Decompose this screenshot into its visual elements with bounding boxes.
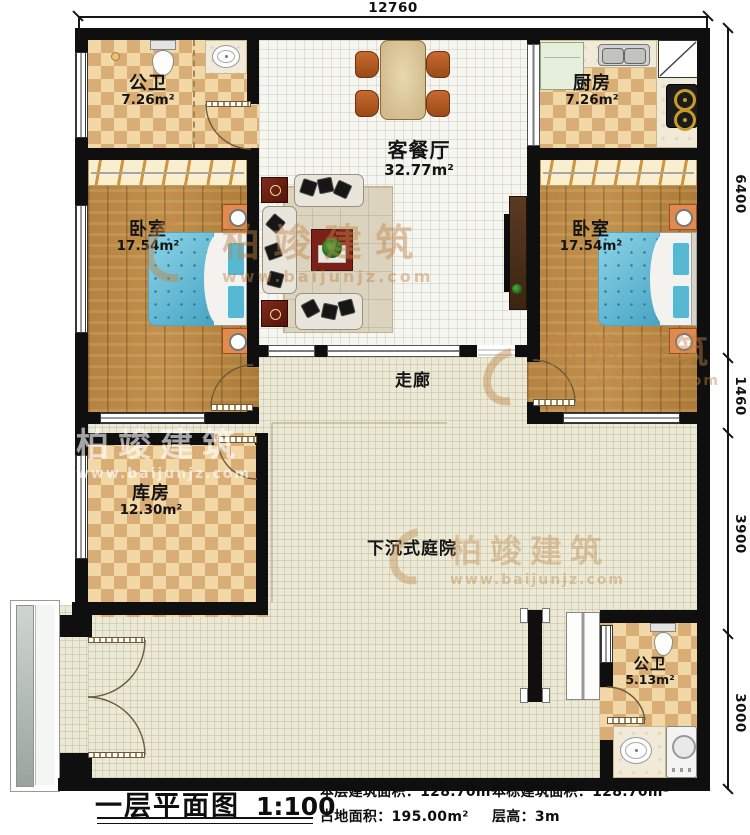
room-area: 32.77m² [384,162,454,178]
door-arc [218,440,257,479]
room-label-bedroom-right: 卧室 17.54m² [560,220,623,254]
door-arc [607,687,645,720]
room-label-living: 客餐厅 32.77m² [384,140,454,178]
flue-diagonal [660,42,696,76]
door-arc [533,360,575,402]
room-label-bath-top: 公卫 7.26m² [121,74,174,108]
room-area: 17.54m² [117,239,180,254]
dimension-line [727,28,729,790]
floor-plan-canvas: 公卫 7.26m² 厨房 7.26m² 客餐厅 32.77m² 卧室 17.54… [0,0,750,835]
room-name: 客餐厅 [384,140,454,162]
room-label-storage: 库房 12.30m² [120,484,183,518]
stat-value: 3m [535,809,560,825]
plan-overlay [0,0,750,835]
room-area: 7.26m² [565,93,618,108]
stat-label: 层高： [492,809,535,825]
room-area: 5.13m² [625,673,674,687]
stat-value: 128.70m² [420,784,497,800]
room-area: 7.26m² [121,93,174,108]
door-arc [88,640,145,697]
stat-building-area: 本栋建筑面积：128.70m² [492,781,669,801]
room-name: 厨房 [565,74,618,93]
stat-value: 195.00m² [392,809,469,825]
stat-land-area: 占地面积：195.00m² [320,806,469,826]
stat-floor-area: 本层建筑面积：128.70m² [320,781,497,801]
room-name: 走廊 [395,372,431,390]
dimension-right-4: 3000 [732,677,748,749]
step-line [272,423,447,602]
room-name: 卧室 [117,220,180,239]
door-arc [88,697,145,755]
room-label-courtyard: 下沉式庭院 [367,540,457,558]
room-name: 库房 [120,484,183,503]
title-underline [97,817,313,824]
room-name: 公卫 [121,74,174,93]
dimension-ext [706,16,708,28]
dimension-right-3: 3900 [732,498,748,570]
stat-value: 128.70m² [592,784,669,800]
room-name: 下沉式庭院 [367,540,457,558]
threshold-line [478,350,515,355]
room-label-corridor: 走廊 [395,372,431,390]
dimension-top: 12760 [78,0,708,16]
room-label-kitchen: 厨房 7.26m² [565,74,618,108]
stat-label: 本栋建筑面积： [492,784,592,800]
room-area: 17.54m² [560,239,623,254]
dimension-right-2: 1460 [732,360,748,432]
dimension-right-1: 6400 [732,158,748,230]
door-arc [206,104,251,149]
door-arc [211,365,253,407]
room-label-bath-bottom: 公卫 5.13m² [625,656,674,686]
room-label-bedroom-left: 卧室 17.54m² [117,220,180,254]
room-name: 公卫 [625,656,674,673]
stat-label: 本层建筑面积： [320,784,420,800]
dimension-line [78,16,708,18]
stat-label: 占地面积： [320,809,392,825]
room-area: 12.30m² [120,503,183,518]
room-name: 卧室 [560,220,623,239]
stat-floor-height: 层高：3m [492,806,560,826]
